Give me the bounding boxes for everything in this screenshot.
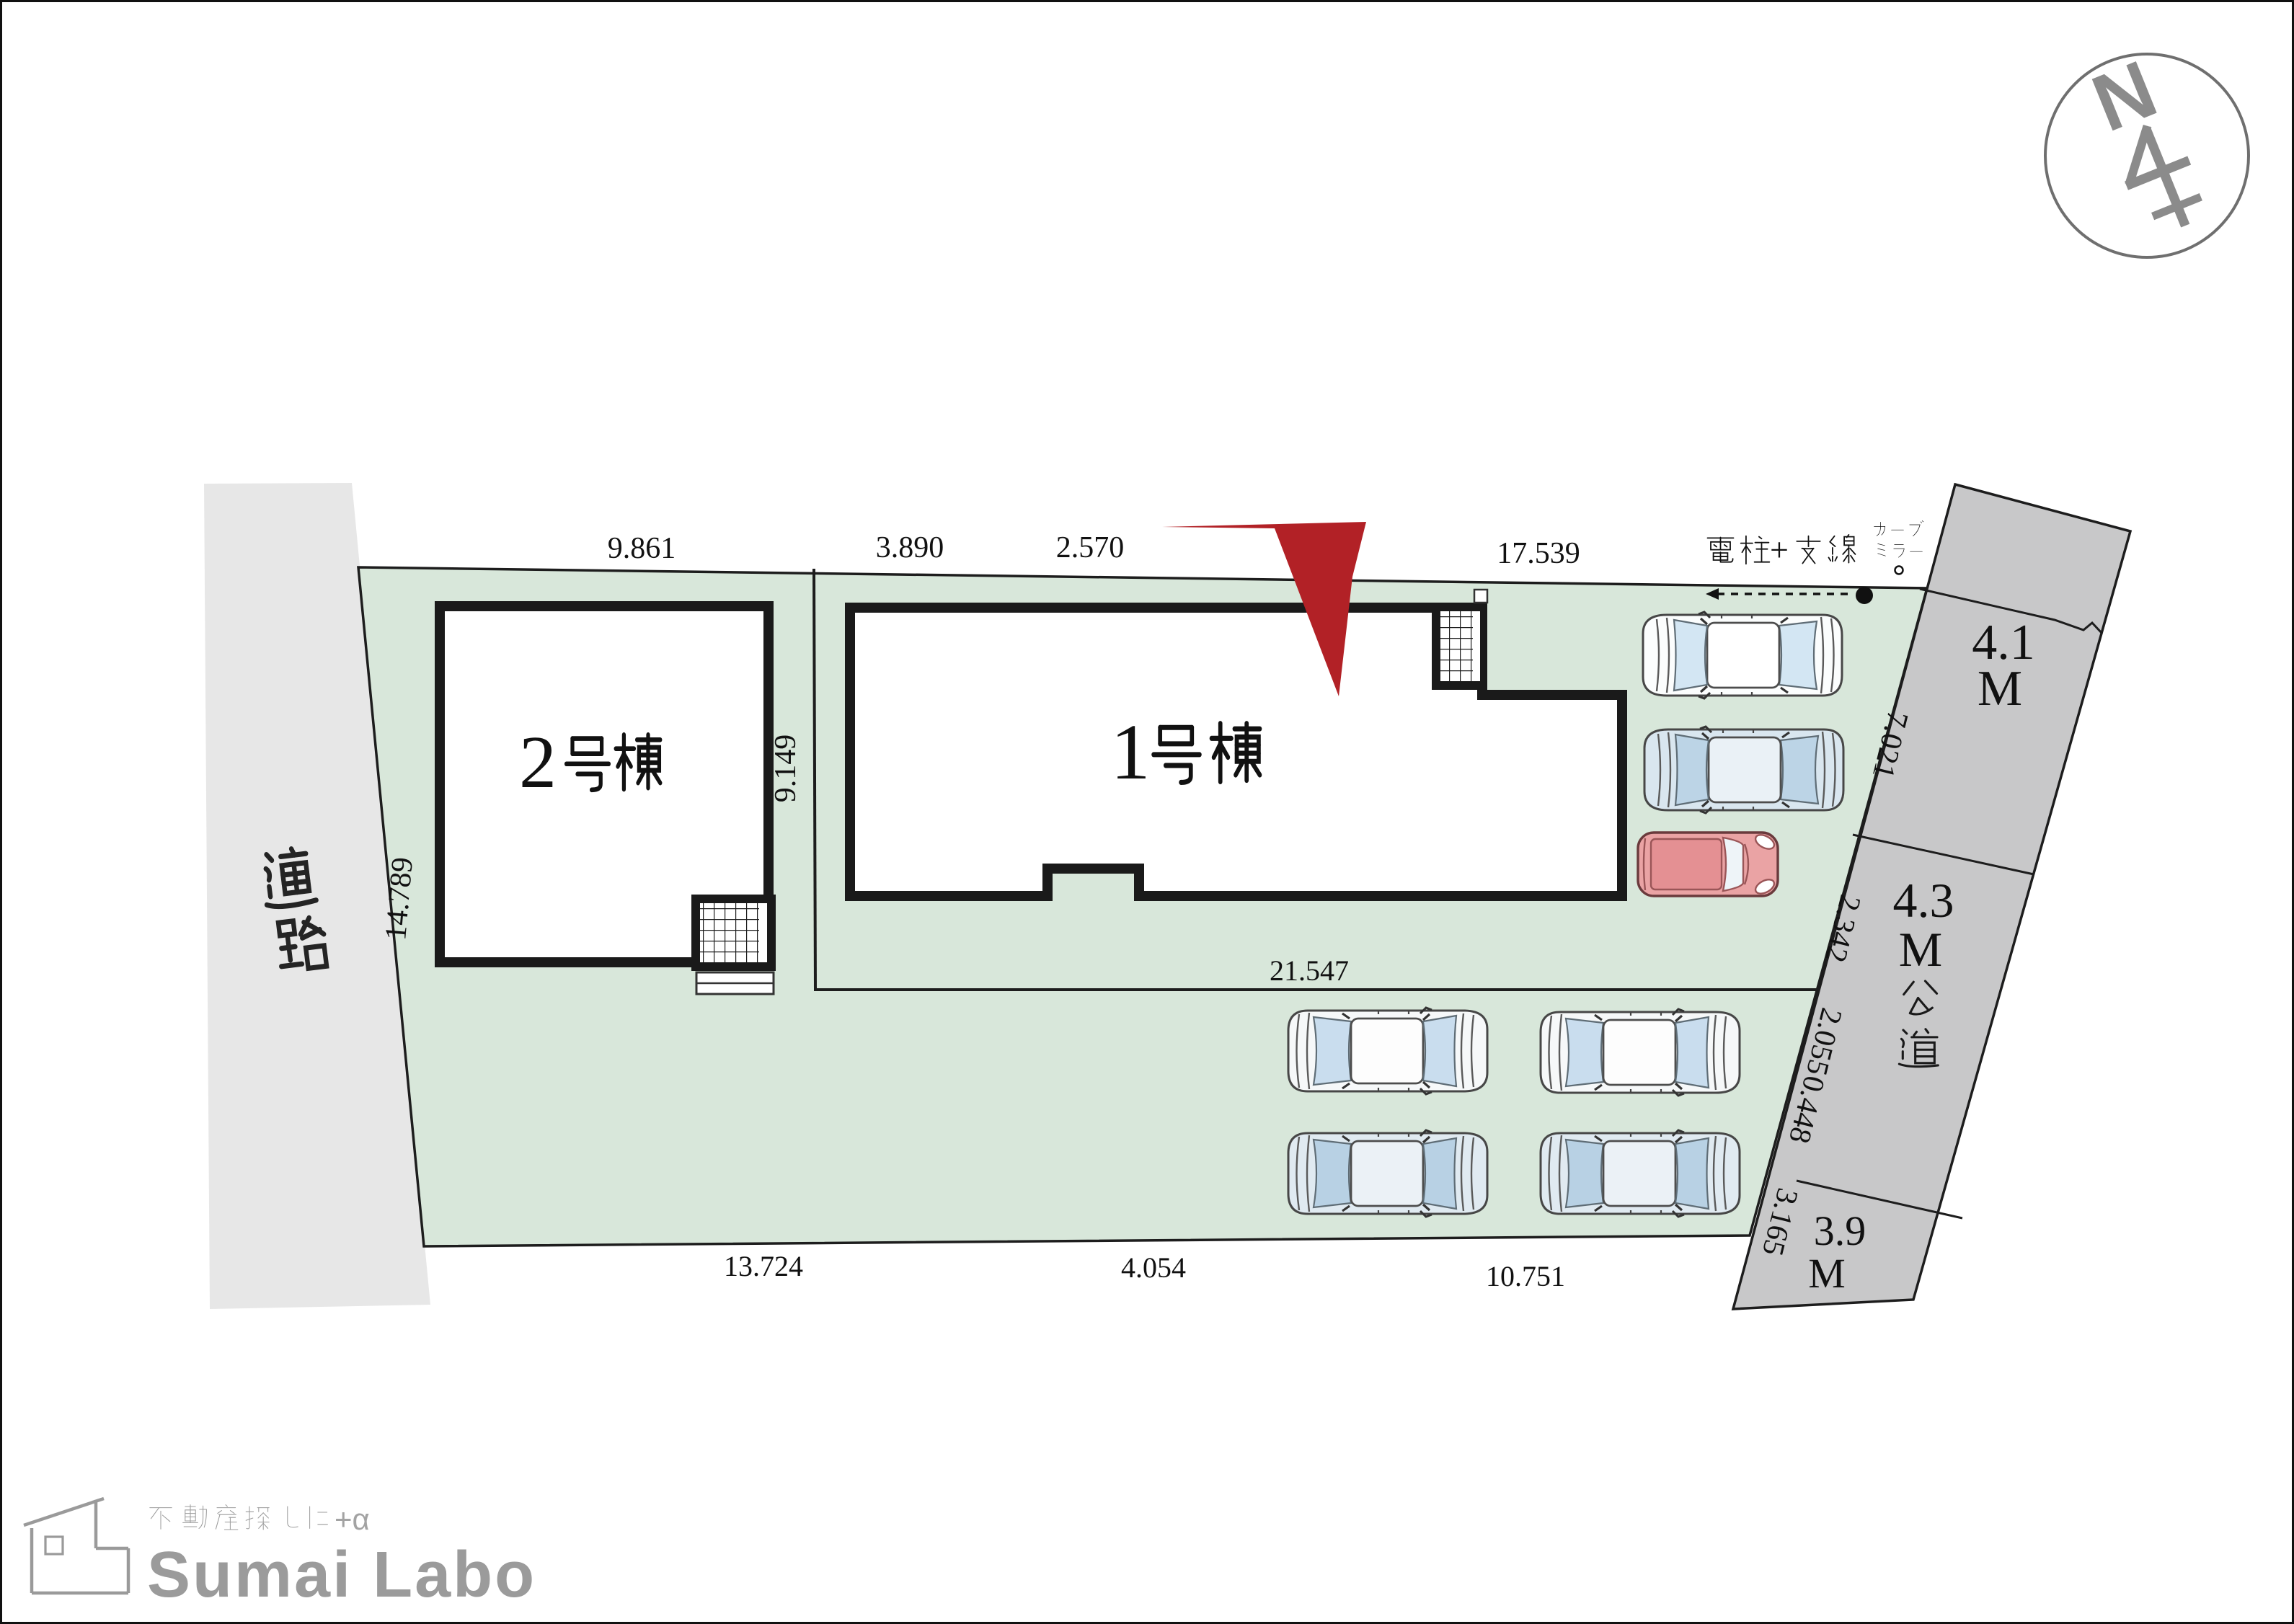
svg-text:4.3: 4.3 — [1893, 873, 1954, 928]
svg-text:M: M — [1808, 1250, 1846, 1297]
svg-text:13.724: 13.724 — [724, 1250, 803, 1282]
svg-text:9.861: 9.861 — [608, 532, 676, 565]
svg-text:9.149: 9.149 — [769, 735, 802, 803]
svg-text:3.9: 3.9 — [1814, 1207, 1866, 1254]
svg-text:M: M — [1899, 922, 1942, 977]
svg-text:M: M — [1978, 661, 2022, 716]
svg-text:3.890: 3.890 — [876, 531, 944, 564]
svg-text:2.570: 2.570 — [1056, 531, 1125, 564]
svg-text:17.539: 17.539 — [1497, 537, 1580, 570]
svg-text:1: 1 — [1111, 708, 1151, 796]
svg-text:2: 2 — [519, 721, 557, 804]
svg-text:+: + — [1770, 531, 1789, 568]
svg-text:4.054: 4.054 — [1121, 1251, 1186, 1284]
svg-text:21.547: 21.547 — [1270, 954, 1349, 987]
svg-text:10.751: 10.751 — [1486, 1260, 1565, 1292]
svg-text:Sumai Labo: Sumai Labo — [147, 1539, 536, 1611]
svg-text:+α: +α — [335, 1502, 370, 1536]
